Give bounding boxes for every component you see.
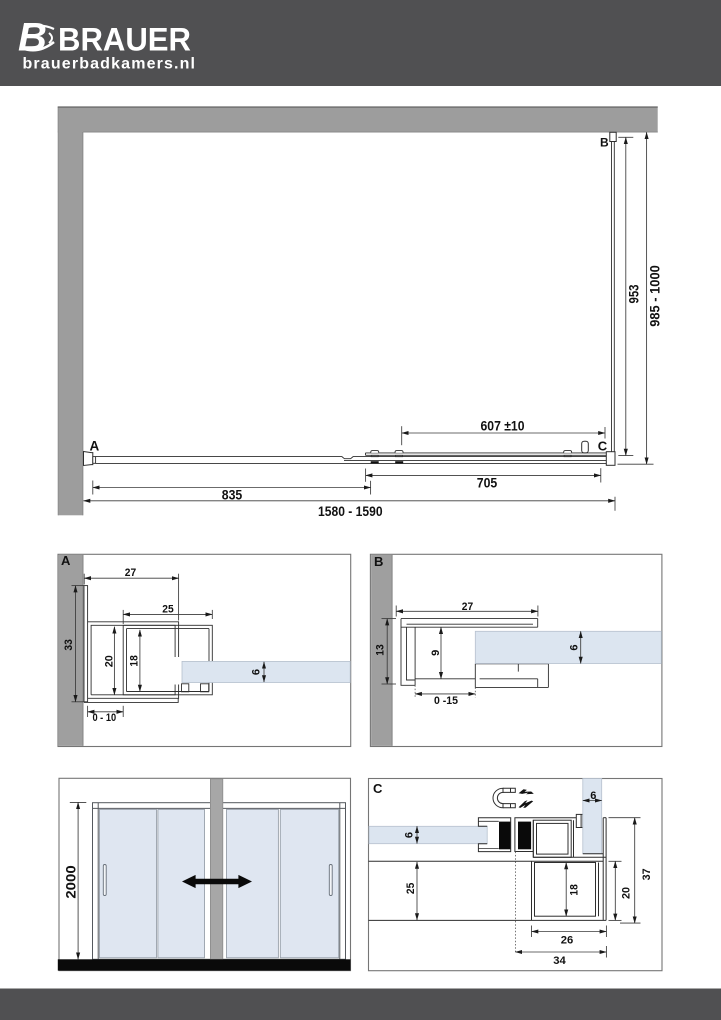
svg-text:985 - 1000: 985 - 1000 <box>647 265 663 327</box>
svg-text:27: 27 <box>462 601 473 613</box>
svg-text:26: 26 <box>561 935 574 947</box>
svg-text:953: 953 <box>626 284 642 303</box>
svg-text:1580 - 1590: 1580 - 1590 <box>318 503 383 519</box>
svg-text:20: 20 <box>621 887 633 899</box>
svg-text:25: 25 <box>162 603 173 615</box>
svg-text:27: 27 <box>125 567 136 579</box>
svg-text:B: B <box>374 554 383 569</box>
svg-text:A: A <box>90 439 100 454</box>
svg-text:2000: 2000 <box>64 865 79 898</box>
svg-text:BRAUER: BRAUER <box>58 22 191 58</box>
svg-text:835: 835 <box>222 487 243 503</box>
svg-text:brauerbadkamers.nl: brauerbadkamers.nl <box>23 56 197 73</box>
svg-text:9: 9 <box>430 650 442 656</box>
svg-text:C: C <box>598 438 608 453</box>
svg-text:25: 25 <box>405 883 417 894</box>
svg-text:C: C <box>373 781 383 796</box>
svg-text:6: 6 <box>251 669 263 675</box>
svg-text:607 ±10: 607 ±10 <box>481 419 525 434</box>
svg-text:18: 18 <box>568 884 580 895</box>
svg-text:B: B <box>600 136 609 150</box>
svg-text:705: 705 <box>477 475 498 491</box>
svg-text:18: 18 <box>128 655 140 666</box>
svg-text:37: 37 <box>641 868 653 880</box>
svg-text:33: 33 <box>63 639 75 650</box>
svg-text:A: A <box>61 553 71 568</box>
svg-text:6: 6 <box>404 832 416 838</box>
svg-text:6: 6 <box>569 644 581 650</box>
svg-text:6: 6 <box>590 790 596 802</box>
svg-text:0 - 10: 0 - 10 <box>92 712 116 724</box>
svg-text:B: B <box>18 16 47 60</box>
svg-text:13: 13 <box>375 644 387 655</box>
svg-text:34: 34 <box>553 955 566 967</box>
svg-text:0 -15: 0 -15 <box>434 695 458 707</box>
svg-text:20: 20 <box>103 655 115 667</box>
